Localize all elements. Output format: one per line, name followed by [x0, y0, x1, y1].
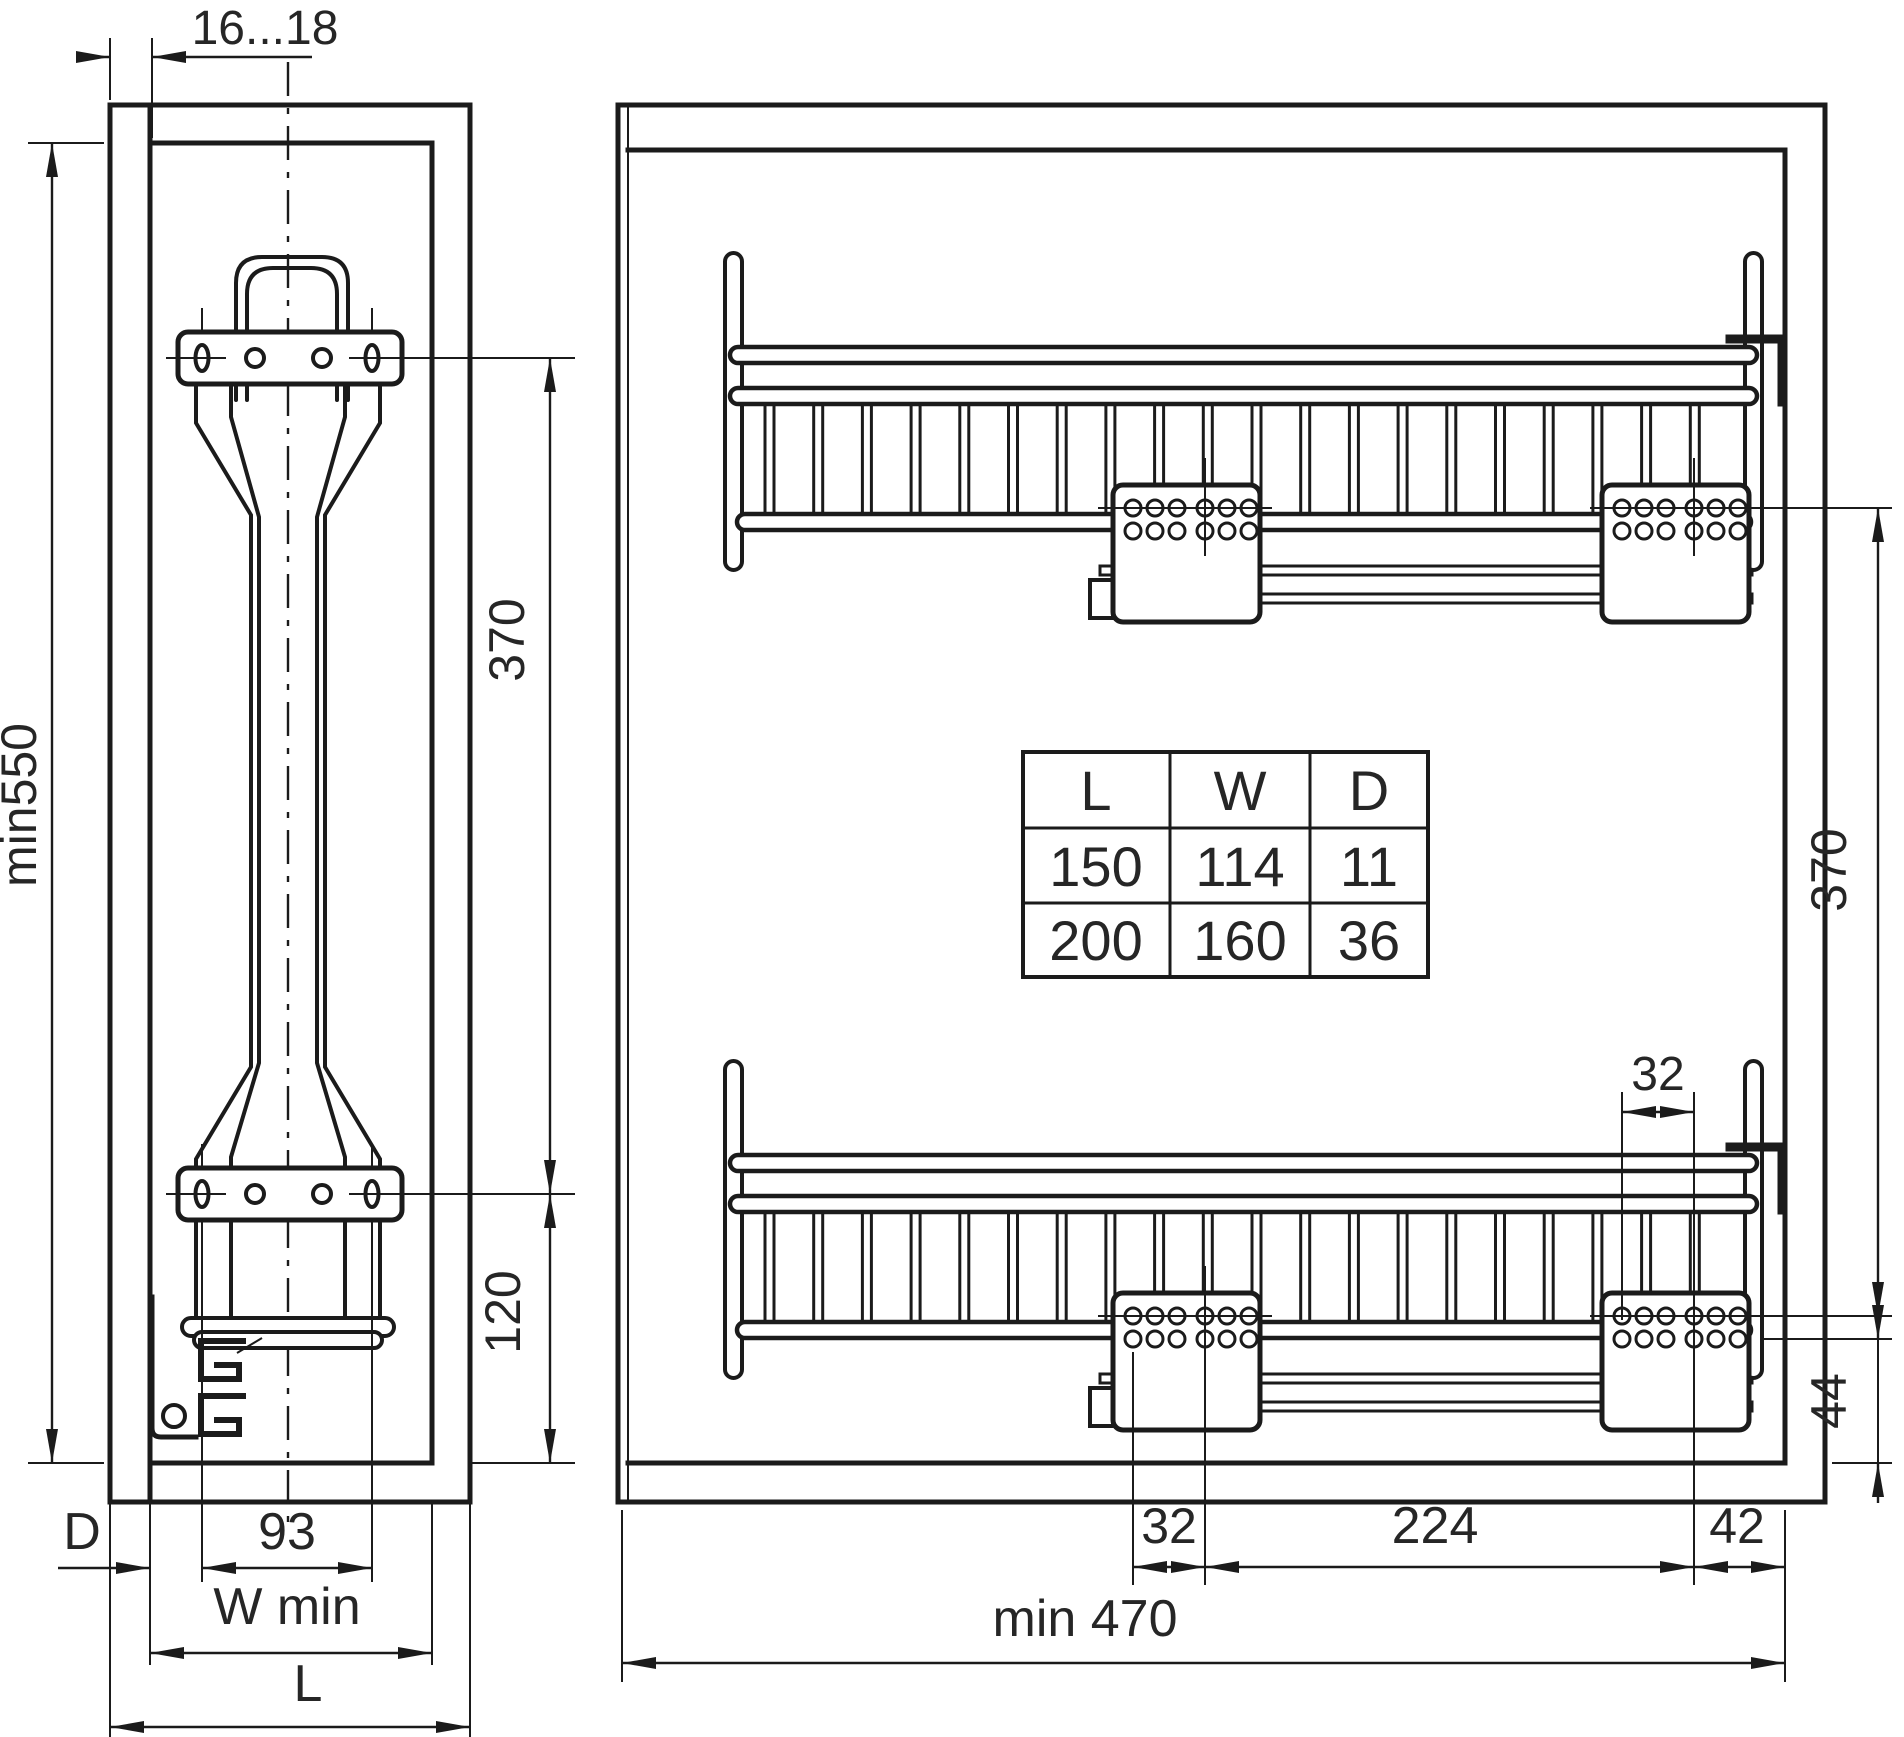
left-cabinet-outline	[110, 105, 470, 1502]
clip-lower	[201, 1396, 243, 1434]
dim-cabinet-height: min550	[0, 143, 104, 1463]
right-view-cabinet-section: 32 370 44 32 224 42	[618, 105, 1892, 1682]
table-cell-r2-w: 160	[1193, 909, 1286, 972]
basket-rail-2	[730, 388, 1757, 404]
dim-hole-pitch-top: 32	[1622, 1048, 1694, 1320]
dim-label-door-thickness: 16...18	[192, 2, 339, 55]
table-header-d: D	[1349, 759, 1389, 822]
table-cell-r1-l: 150	[1049, 835, 1142, 898]
dim-label-vertical-span: 370	[1801, 828, 1857, 911]
mount-block-right	[1602, 485, 1749, 622]
dim-label-hole-pitch-bottom: 32	[1141, 1498, 1197, 1554]
dim-label-hole-pitch-top: 32	[1631, 1048, 1684, 1101]
dim-label-cabinet-height: min550	[0, 723, 47, 887]
lower-basket-assembly	[725, 1061, 1782, 1430]
table-header-w: W	[1214, 759, 1267, 822]
runner-stub	[1090, 580, 1113, 618]
table-header-l: L	[1080, 759, 1111, 822]
dim-label-back-offset: 42	[1709, 1498, 1765, 1554]
table-cell-r2-d: 36	[1338, 909, 1400, 972]
dim-bracket-span: 370	[479, 358, 550, 1194]
left-view-cabinet-section: 16...18 min550 370 120 D 93	[0, 2, 575, 1737]
table-cell-r1-w: 114	[1195, 835, 1284, 898]
dim-label-slot-spacing: 93	[258, 1503, 316, 1561]
dim-label-length: L	[294, 1655, 323, 1713]
bracket-hole	[163, 1405, 185, 1427]
dim-bottom-span: 120	[470, 1194, 575, 1463]
table-cell-r2-l: 200	[1049, 909, 1142, 972]
dim-label-width-min: W min	[213, 1578, 360, 1636]
dim-label-depth: D	[63, 1503, 101, 1561]
pullout-basket-drawing: 16...18 min550 370 120 D 93	[0, 0, 1904, 1737]
lower-mounting-plate	[166, 1144, 575, 1220]
table-cell-r1-d: 11	[1340, 835, 1398, 898]
dim-depth-min: min 470	[622, 1590, 1785, 1663]
dim-label-bottom-offset: 44	[1801, 1373, 1857, 1429]
dim-door-thickness: 16...18	[76, 2, 338, 138]
dim-label-bracket-span: 370	[479, 598, 535, 681]
technical-drawing-page: 16...18 min550 370 120 D 93	[0, 0, 1904, 1737]
upper-mounting-plate	[166, 308, 575, 384]
basket-rail-top	[730, 347, 1757, 363]
dim-label-runner-span: 224	[1392, 1497, 1479, 1555]
upper-basket-assembly	[725, 253, 1782, 622]
dim-label-depth-min: min 470	[993, 1590, 1178, 1648]
dim-label-bottom-span: 120	[475, 1270, 531, 1353]
size-table: L W D 150 114 11 200 160 36	[1023, 752, 1428, 977]
mount-block-left	[1113, 485, 1260, 622]
